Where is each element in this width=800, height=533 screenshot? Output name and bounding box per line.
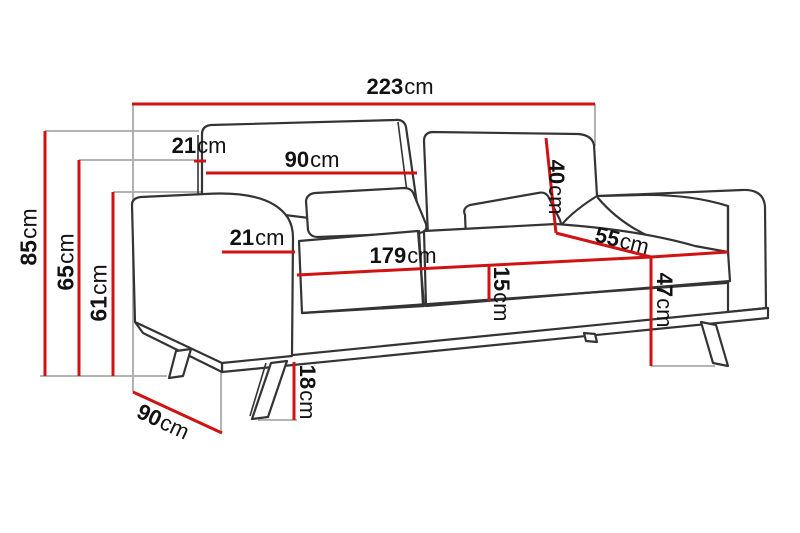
dim-unit: cm [652, 298, 677, 327]
dim-label-seat-height: 47cm [653, 273, 675, 328]
dim-value: 65 [53, 265, 79, 291]
sofa-dimension-diagram: 223cm 21cm 90cm 85cm 65cm 61cm 21cm 179c… [0, 0, 800, 533]
dim-label-seat-cushion-thickness: 15cm [490, 267, 512, 322]
dim-value: 223 [366, 74, 403, 99]
leg-front-right [701, 322, 728, 366]
leg-back-center [584, 333, 597, 342]
dim-label-seat-back-height: 61cm [88, 264, 111, 321]
dim-value: 179 [369, 243, 406, 268]
dim-unit: cm [255, 225, 284, 250]
dim-value: 15 [489, 267, 514, 291]
dim-value: 61 [86, 296, 112, 322]
dim-value: 21 [172, 133, 196, 158]
leg-front-left [169, 349, 191, 378]
dim-value: 85 [16, 240, 42, 266]
dim-unit: cm [404, 74, 433, 99]
dim-unit: cm [16, 208, 42, 239]
dim-value: 18 [295, 365, 320, 389]
dim-unit: cm [310, 147, 339, 172]
dim-label-total-width: 223cm [366, 76, 433, 98]
dim-label-backrest-top-depth: 21cm [172, 135, 227, 157]
dim-unit: cm [295, 390, 320, 419]
dim-label-armrest-width: 21cm [230, 227, 285, 249]
sofa-drawing [132, 120, 768, 419]
dim-label-back-cushion-height: 40cm [545, 160, 567, 215]
dim-value: 21 [230, 225, 254, 250]
dim-label-overall-height: 85cm [18, 208, 41, 265]
dim-unit: cm [197, 133, 226, 158]
dim-value: 90 [285, 147, 309, 172]
dim-unit: cm [53, 233, 79, 264]
dim-label-armrest-height: 65cm [55, 233, 78, 290]
dim-unit: cm [489, 292, 514, 321]
dim-unit: cm [544, 185, 569, 214]
lumbar-pillow-left [306, 188, 426, 237]
dim-value: 47 [652, 273, 677, 297]
dim-label-leg-height: 18cm [296, 365, 318, 420]
dim-label-seat-width: 179cm [369, 245, 436, 267]
dim-unit: cm [407, 243, 436, 268]
dim-unit: cm [86, 264, 112, 295]
dim-label-back-cushion-width: 90cm [285, 149, 340, 171]
dim-value: 40 [544, 160, 569, 184]
